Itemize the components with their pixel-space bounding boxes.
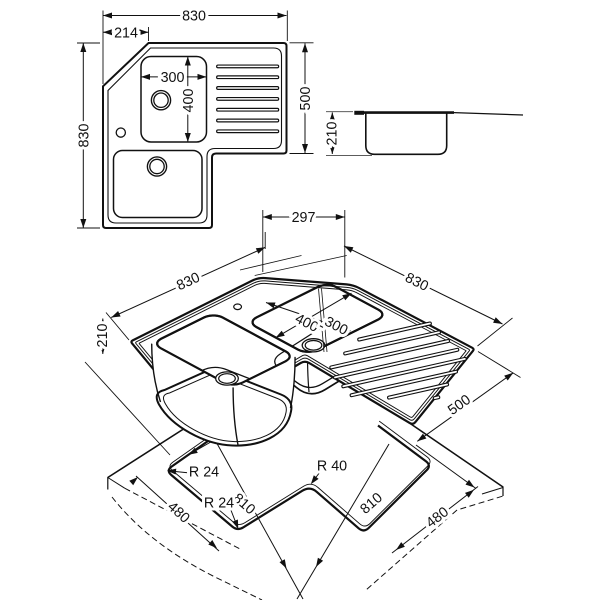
svg-text:400: 400 bbox=[181, 89, 197, 113]
svg-text:214: 214 bbox=[114, 25, 138, 41]
svg-text:500: 500 bbox=[298, 87, 314, 111]
svg-text:R 24: R 24 bbox=[189, 465, 219, 481]
svg-text:300: 300 bbox=[161, 70, 185, 86]
svg-text:R 24: R 24 bbox=[204, 496, 234, 512]
svg-text:210: 210 bbox=[325, 122, 341, 146]
svg-text:R 40: R 40 bbox=[317, 459, 347, 475]
svg-text:210: 210 bbox=[95, 324, 111, 348]
svg-text:297: 297 bbox=[292, 210, 316, 226]
svg-text:830: 830 bbox=[182, 9, 206, 25]
svg-text:830: 830 bbox=[76, 124, 92, 148]
